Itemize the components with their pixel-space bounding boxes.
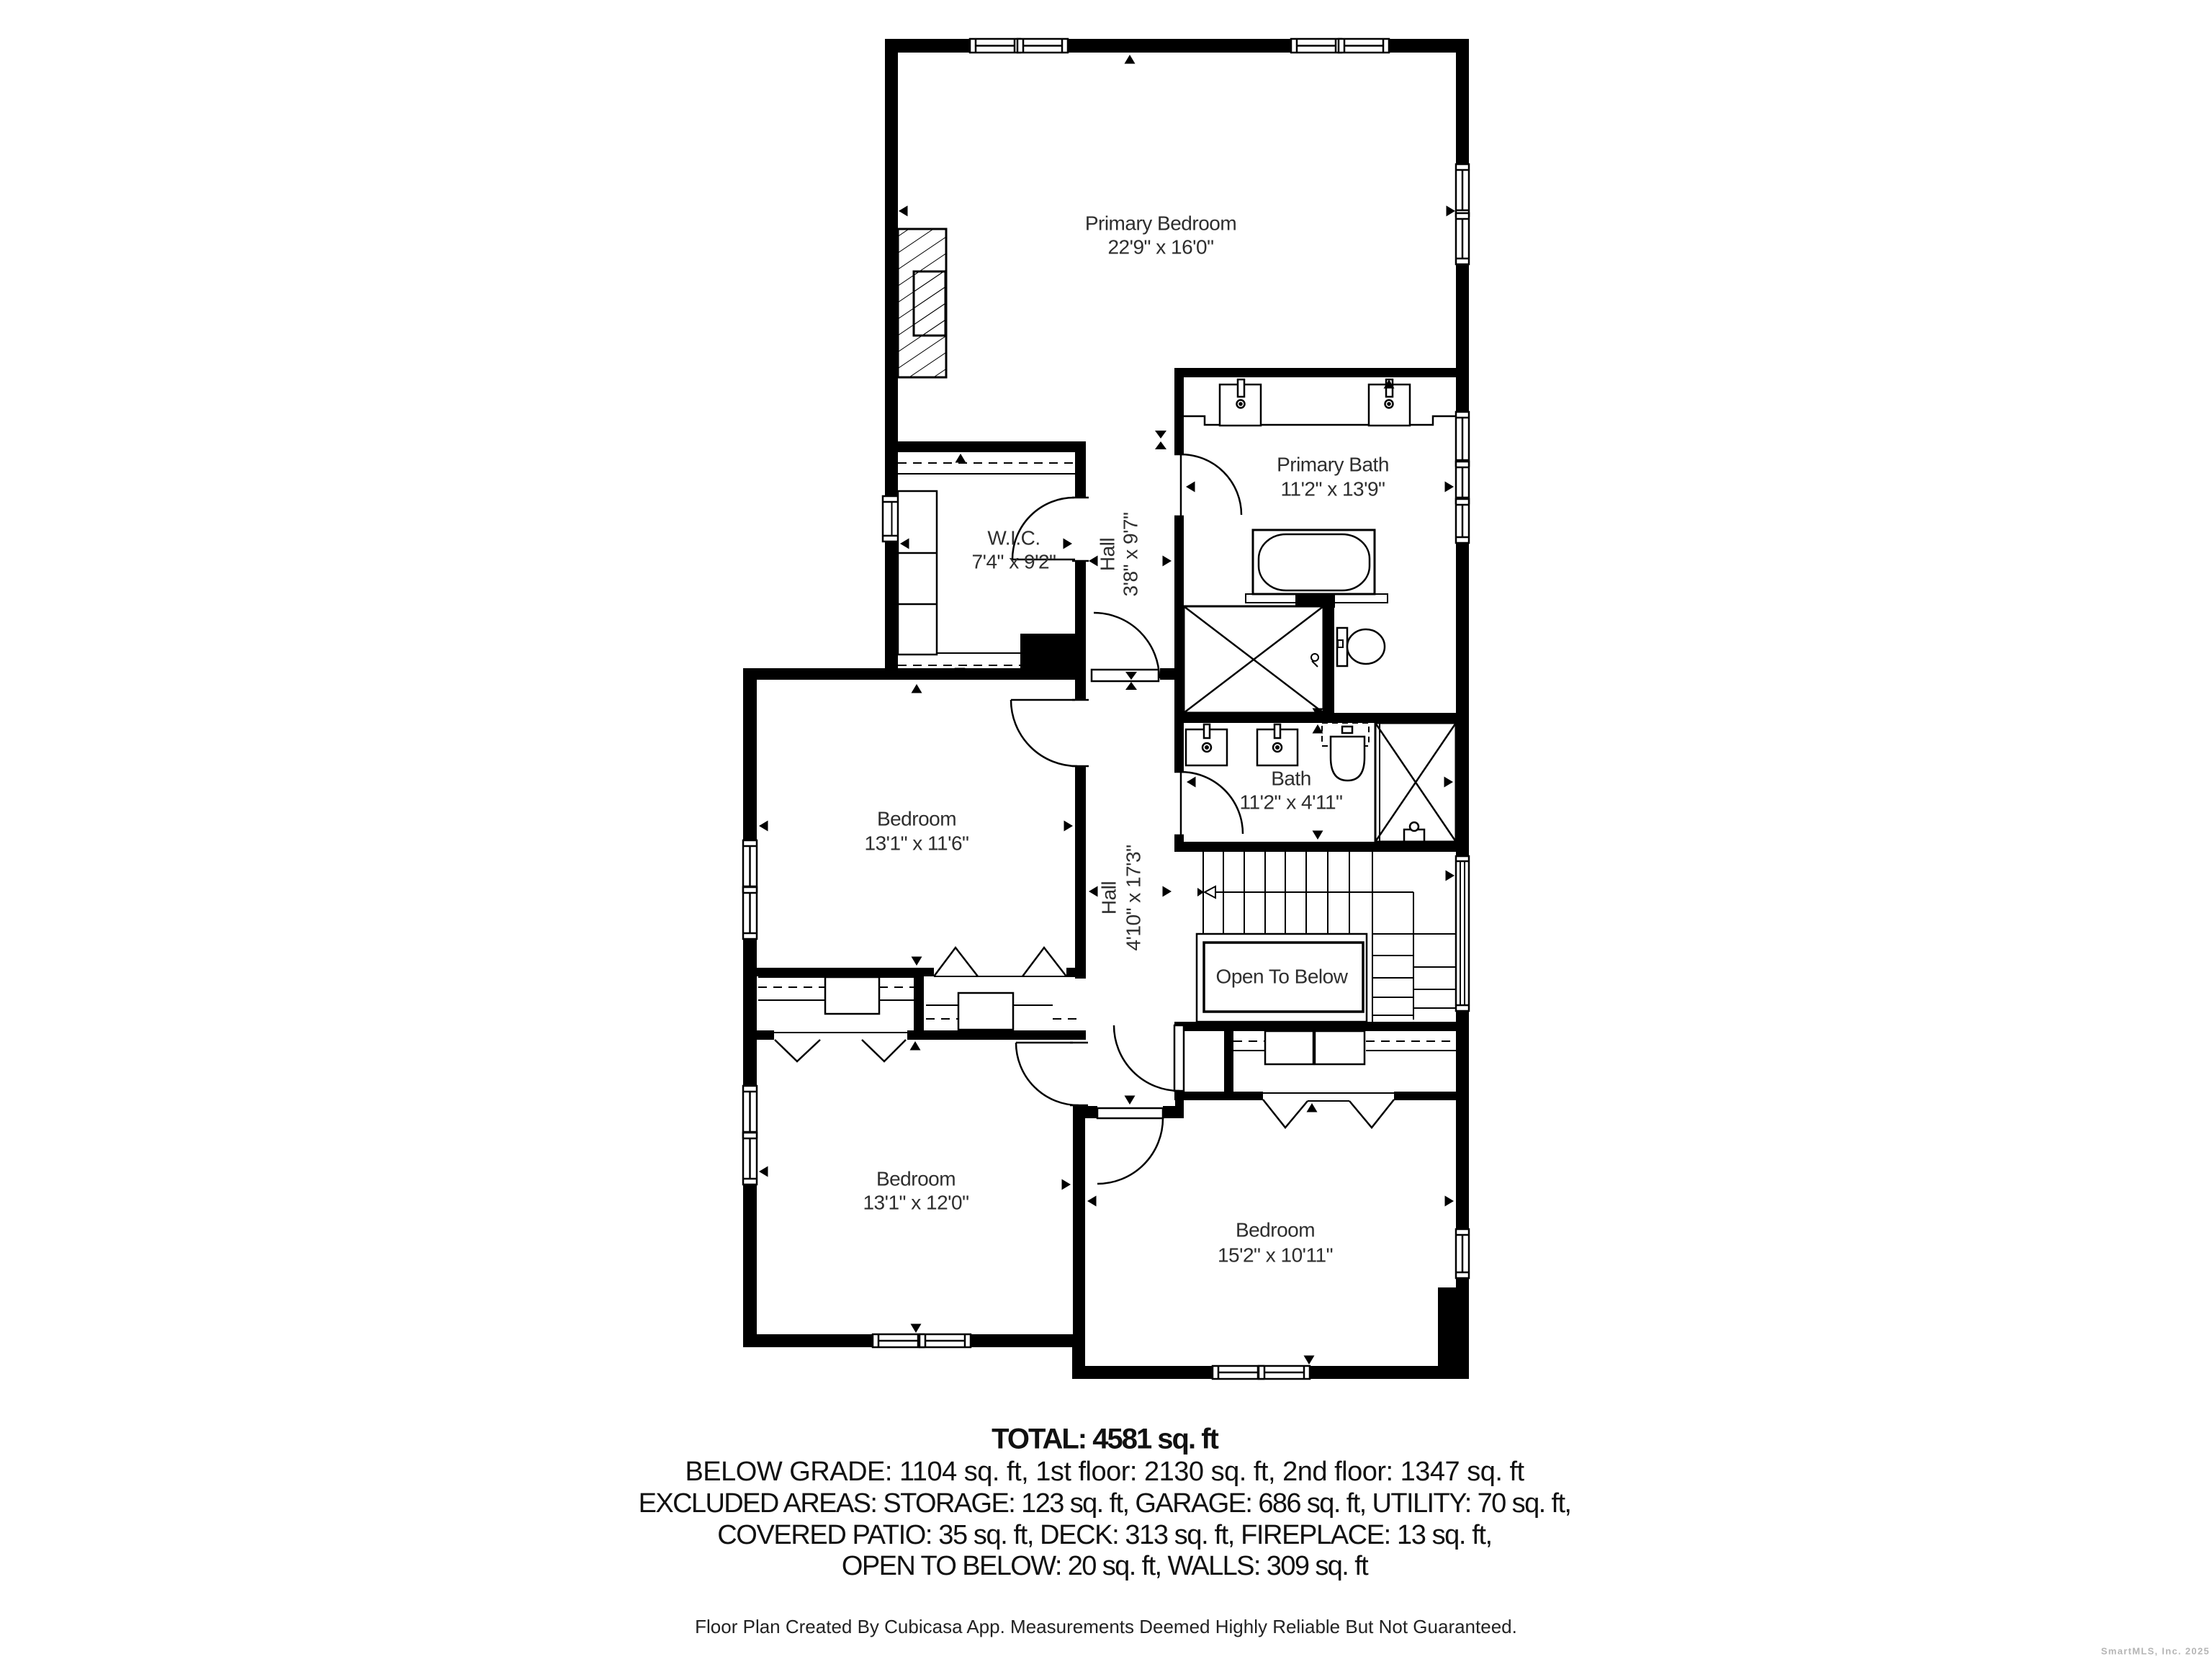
svg-text:TOTAL: 4581 sq. ft: TOTAL: 4581 sq. ft [992, 1424, 1218, 1455]
svg-text:W.I.C.: W.I.C. [987, 526, 1040, 549]
svg-text:OPEN TO BELOW: 20 sq. ft, WALL: OPEN TO BELOW: 20 sq. ft, WALLS: 309 sq.… [842, 1551, 1369, 1581]
svg-text:13'1" x 11'6": 13'1" x 11'6" [865, 832, 969, 854]
svg-text:Bedroom: Bedroom [876, 1167, 956, 1190]
svg-text:11'2" x 4'11": 11'2" x 4'11" [1240, 791, 1343, 813]
svg-text:3'8" x 9'7": 3'8" x 9'7" [1119, 513, 1141, 597]
svg-text:15'2" x 10'11": 15'2" x 10'11" [1218, 1244, 1333, 1266]
svg-text:EXCLUDED AREAS: STORAGE: 123 s: EXCLUDED AREAS: STORAGE: 123 sq. ft, GAR… [639, 1488, 1571, 1519]
svg-text:4'10" x 17'3": 4'10" x 17'3" [1122, 845, 1144, 950]
svg-text:22'9" x 16'0": 22'9" x 16'0" [1107, 235, 1213, 258]
svg-text:Floor Plan Created By Cubicasa: Floor Plan Created By Cubicasa App. Meas… [695, 1616, 1517, 1637]
svg-text:Open To Below: Open To Below [1216, 965, 1349, 987]
svg-text:Hall: Hall [1096, 538, 1118, 571]
svg-text:COVERED PATIO: 35 sq. ft, DECK: COVERED PATIO: 35 sq. ft, DECK: 313 sq. … [717, 1520, 1491, 1550]
svg-text:BELOW GRADE: 1104 sq. ft, 1st: BELOW GRADE: 1104 sq. ft, 1st floor: 213… [685, 1457, 1524, 1487]
svg-text:Primary Bath: Primary Bath [1277, 453, 1389, 475]
svg-text:Hall: Hall [1097, 881, 1120, 914]
svg-text:Bedroom: Bedroom [1236, 1218, 1315, 1241]
svg-text:Bedroom: Bedroom [877, 807, 956, 829]
svg-text:11'2" x 13'9": 11'2" x 13'9" [1281, 477, 1385, 500]
svg-text:7'4" x 9'2": 7'4" x 9'2" [972, 550, 1056, 572]
svg-text:13'1" x 12'0": 13'1" x 12'0" [863, 1191, 968, 1213]
svg-text:SmartMLS, Inc. 2025: SmartMLS, Inc. 2025 [2101, 1645, 2210, 1656]
svg-text:Primary Bedroom: Primary Bedroom [1085, 212, 1236, 234]
svg-text:Bath: Bath [1271, 767, 1311, 789]
